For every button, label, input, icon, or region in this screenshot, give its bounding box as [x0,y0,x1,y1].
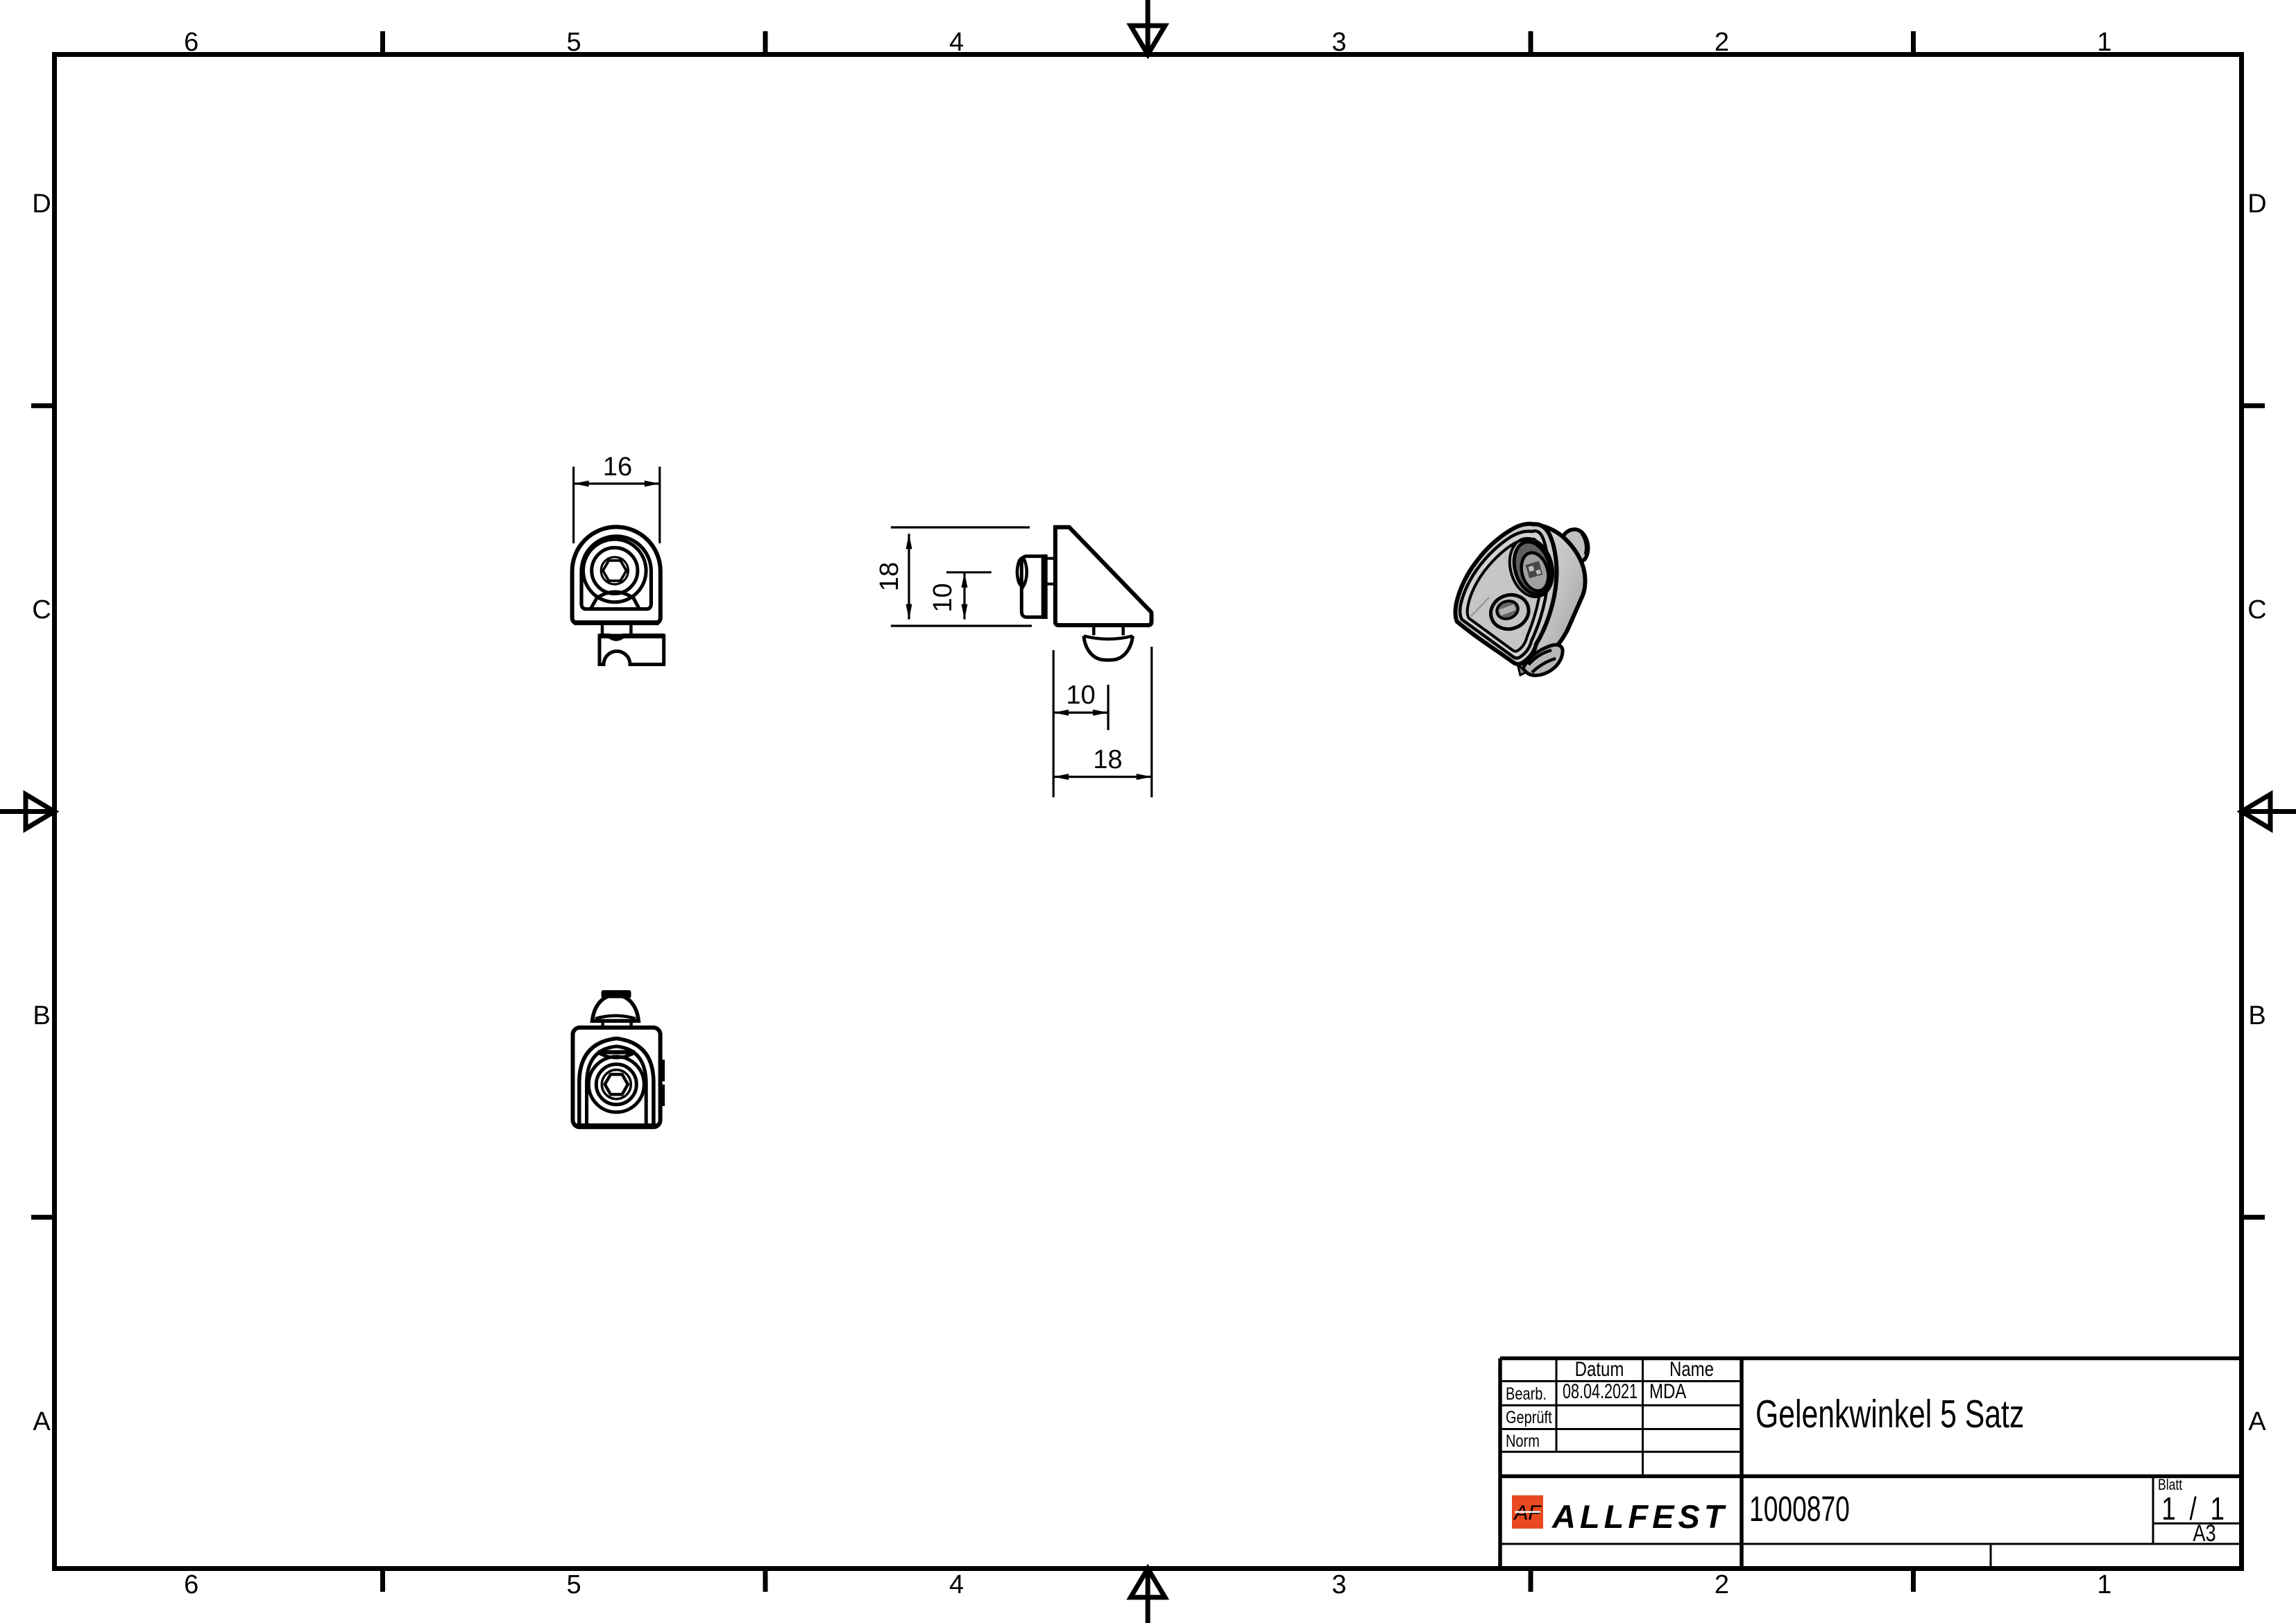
svg-text:10: 10 [1066,681,1095,710]
svg-text:10: 10 [928,583,958,612]
svg-text:A3: A3 [2193,1520,2216,1547]
svg-text:2: 2 [1715,28,1729,57]
svg-text:08.04.2021: 08.04.2021 [1563,1379,1638,1402]
svg-text:B: B [33,1001,50,1030]
svg-text:A: A [33,1407,51,1436]
svg-text:4: 4 [949,28,964,57]
svg-text:Gelenkwinkel 5 Satz: Gelenkwinkel 5 Satz [1755,1391,2024,1436]
svg-text:B: B [2248,1001,2265,1030]
svg-text:Norm: Norm [1506,1431,1540,1451]
svg-text:1: 1 [2097,1570,2111,1599]
svg-text:Name: Name [1669,1357,1714,1380]
svg-text:3: 3 [1332,1570,1346,1599]
svg-text:1000870: 1000870 [1749,1490,1850,1529]
svg-text:16: 16 [603,452,632,482]
svg-text:MDA: MDA [1649,1379,1687,1402]
svg-text:18: 18 [875,562,904,591]
svg-text:18: 18 [1093,745,1122,774]
svg-text:6: 6 [184,1570,198,1599]
svg-text:D: D [2247,189,2266,219]
svg-text:C: C [32,595,51,624]
svg-text:6: 6 [184,28,198,57]
svg-text:2: 2 [1715,1570,1729,1599]
svg-text:Bearb.: Bearb. [1506,1384,1547,1404]
svg-text:Geprüft: Geprüft [1506,1408,1552,1427]
svg-text:1: 1 [2097,28,2111,57]
svg-text:3: 3 [1332,28,1346,57]
svg-text:Datum: Datum [1575,1357,1624,1380]
svg-text:AF: AF [1513,1502,1542,1524]
svg-text:5: 5 [567,1570,581,1599]
svg-text:A: A [2248,1407,2266,1436]
svg-text:ALLFEST: ALLFEST [1551,1498,1728,1535]
svg-text:C: C [2247,595,2266,624]
svg-text:D: D [32,189,51,219]
svg-text:4: 4 [949,1570,964,1599]
svg-text:5: 5 [567,28,581,57]
